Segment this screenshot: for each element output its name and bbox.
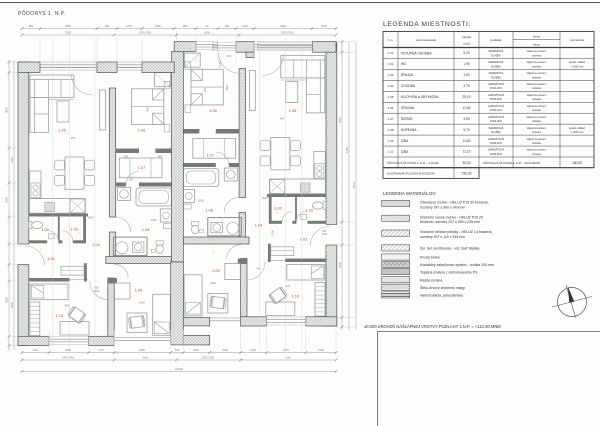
svg-text:IZBA: IZBA: [401, 150, 409, 154]
svg-text:PODLAHA: PODLAHA: [490, 87, 502, 90]
svg-text:2050: 2050: [155, 24, 161, 28]
svg-text:1,50: 1,50: [463, 73, 469, 77]
svg-text:omietka: omietka: [532, 65, 541, 68]
svg-text:Vnútorné nosné murivo - HELUZ: Vnútorné nosné murivo - HELUZ P15 25: [420, 215, 483, 219]
svg-text:PODLAHA: PODLAHA: [490, 109, 502, 112]
svg-text:1320: 1320: [193, 348, 199, 352]
svg-text:2000: 2000: [65, 348, 71, 352]
svg-text:omietka: omietka: [532, 76, 541, 79]
svg-text:1.03: 1.03: [388, 73, 394, 77]
svg-text:rozmery 247 x 300 x 249 mm: rozmery 247 x 300 x 249 mm: [420, 205, 465, 209]
svg-text:1.04: 1.04: [255, 223, 263, 228]
svg-text:v. 1500 mm: v. 1500 mm: [571, 65, 584, 68]
svg-text:450: 450: [71, 136, 76, 140]
svg-text:rozmery 497 x 115 x 249 mm: rozmery 497 x 115 x 249 mm: [420, 235, 465, 239]
svg-text:11,60: 11,60: [463, 106, 471, 110]
svg-text:1302 (780): 1302 (780): [202, 356, 215, 360]
svg-text:WC: WC: [401, 62, 407, 66]
svg-text:1300: 1300: [242, 24, 248, 28]
svg-text:DLAŽBA: DLAŽBA: [491, 76, 501, 79]
svg-text:1000: 1000: [218, 61, 222, 67]
svg-text:1.06: 1.06: [388, 106, 394, 110]
svg-text:2250: 2250: [65, 31, 71, 35]
svg-text:PODLAHA: PODLAHA: [490, 142, 502, 145]
svg-text:IZBA: IZBA: [401, 139, 409, 143]
svg-text:omietka: omietka: [532, 54, 541, 57]
svg-text:PODLAHA: PODLAHA: [490, 120, 502, 123]
svg-text:1600: 1600: [262, 196, 268, 200]
svg-text:400: 400: [286, 284, 291, 288]
svg-text:1450: 1450: [345, 147, 349, 153]
svg-text:3850: 3850: [5, 107, 9, 113]
svg-text:1.07: 1.07: [388, 117, 394, 121]
svg-text:300: 300: [227, 54, 232, 58]
svg-text:6200: 6200: [204, 31, 210, 35]
svg-text:400: 400: [146, 107, 150, 112]
svg-text:3,70: 3,70: [463, 84, 469, 88]
svg-text:3050: 3050: [65, 24, 71, 28]
svg-text:1285: 1285: [250, 348, 256, 352]
svg-text:1.01: 1.01: [388, 51, 394, 55]
svg-text:Žel. bet. konštrukcie - viď. č: Žel. bet. konštrukcie - viď. časť Statik…: [420, 246, 480, 251]
svg-text:900: 900: [256, 267, 261, 271]
svg-text:omietka: omietka: [532, 109, 541, 112]
svg-text:Vápenno-cement.: Vápenno-cement.: [527, 72, 547, 75]
svg-text:2000: 2000: [222, 348, 228, 352]
svg-text:3100: 3100: [285, 356, 291, 360]
svg-text:950: 950: [225, 24, 230, 28]
svg-text:950: 950: [183, 24, 188, 28]
svg-text:630: 630: [175, 348, 180, 352]
svg-text:11,60: 11,60: [463, 139, 471, 143]
svg-text:1,90: 1,90: [463, 62, 469, 66]
svg-text:KERAMICKÁ: KERAMICKÁ: [489, 127, 504, 130]
svg-text:DLAŽBA: DLAŽBA: [491, 54, 501, 57]
svg-text:2600: 2600: [151, 218, 157, 222]
svg-text:ZASTAVANÁ PLOCHA DVOJDOM: ZASTAVANÁ PLOCHA DVOJDOM: [387, 172, 435, 176]
svg-text:1.08: 1.08: [142, 227, 150, 232]
svg-text:Vápenno-cement.: Vápenno-cement.: [527, 149, 547, 152]
svg-text:ÚŽITKOVÁ PLOCHA 1. N.P. - 1 DO: ÚŽITKOVÁ PLOCHA 1. N.P. - 1 DOM: [387, 160, 439, 165]
svg-text:v. 2600 mm: v. 2600 mm: [571, 131, 584, 134]
svg-text:KERAMICKÁ: KERAMICKÁ: [489, 61, 504, 64]
svg-text:2850: 2850: [5, 297, 9, 303]
svg-text:400: 400: [203, 87, 207, 92]
svg-text:omietka: omietka: [532, 120, 541, 123]
svg-text:PODLAHA: PODLAHA: [490, 98, 502, 101]
svg-text:90,30: 90,30: [463, 161, 471, 165]
svg-text:1.05: 1.05: [388, 95, 394, 99]
svg-text:1.06: 1.06: [209, 108, 217, 113]
svg-text:(m2): (m2): [463, 42, 469, 46]
svg-text:1270: 1270: [98, 348, 104, 352]
svg-text:1.09: 1.09: [212, 268, 220, 273]
svg-text:2900: 2900: [5, 197, 9, 203]
svg-text:2900: 2900: [210, 281, 216, 285]
svg-text:KERAMICKÁ: KERAMICKÁ: [489, 72, 504, 75]
svg-text:3300: 3300: [280, 24, 286, 28]
svg-text:LAMINÁTOVÁ: LAMINÁTOVÁ: [488, 138, 504, 141]
svg-text:2900: 2900: [139, 301, 145, 305]
svg-text:1500: 1500: [318, 348, 324, 352]
svg-text:1.08: 1.08: [205, 208, 213, 213]
svg-text:960: 960: [29, 24, 34, 28]
svg-text:1.02: 1.02: [41, 227, 49, 232]
svg-text:1.10: 1.10: [292, 293, 300, 298]
svg-text:1.04: 1.04: [92, 242, 100, 247]
svg-text:1.02: 1.02: [388, 62, 394, 66]
svg-text:1.01: 1.01: [300, 237, 308, 242]
svg-text:keram. obklad: keram. obklad: [569, 61, 585, 64]
svg-text:2400: 2400: [338, 262, 342, 268]
svg-text:Vnútorné deliace priečky - HEL: Vnútorné deliace priečky - HELUZ 14 brús…: [420, 230, 492, 234]
svg-text:1.09: 1.09: [388, 139, 394, 143]
svg-text:2100: 2100: [322, 232, 328, 236]
svg-text:900: 900: [129, 178, 134, 182]
svg-text:LAMINÁTOVÁ: LAMINÁTOVÁ: [488, 149, 504, 152]
svg-text:SPÁLŇA: SPÁLŇA: [401, 106, 415, 110]
svg-text:1300 (780): 1300 (780): [281, 31, 294, 35]
svg-text:±0,000 ÚROVEŇ NÁŠĽAPNEJ VRSTVY: ±0,000 ÚROVEŇ NÁŠĽAPNEJ VRSTVY PODLAHY 1…: [364, 324, 501, 329]
svg-text:keram. obklad: keram. obklad: [569, 127, 585, 130]
svg-text:LAMINÁTOVÁ: LAMINÁTOVÁ: [488, 116, 504, 119]
svg-text:KÚPEĽŇA: KÚPEĽŇA: [401, 128, 417, 132]
svg-text:1.01: 1.01: [47, 256, 55, 261]
svg-text:Prostý betón: Prostý betón: [420, 256, 440, 260]
svg-text:brúsená, rozmery 247 x 250 x 2: brúsená, rozmery 247 x 250 x 249 mm: [420, 220, 480, 224]
svg-text:PÔDORYS 1. N.P.: PÔDORYS 1. N.P.: [18, 10, 66, 17]
svg-text:č.m.: č.m.: [388, 38, 394, 42]
svg-text:8950: 8950: [10, 302, 14, 308]
svg-text:ÚŽITKOVÁ PLOCHA 1. N.P. - DVOJ: ÚŽITKOVÁ PLOCHA 1. N.P. - DVOJDOM: [483, 160, 540, 165]
svg-text:750: 750: [124, 155, 129, 159]
svg-text:Vápenno-cement.: Vápenno-cement.: [527, 116, 547, 119]
svg-text:Hydroizolácia, parozábrana: Hydroizolácia, parozábrana: [420, 294, 463, 298]
svg-text:1305 (780): 1305 (780): [139, 31, 152, 35]
svg-text:1570: 1570: [321, 24, 327, 28]
svg-text:2600: 2600: [198, 199, 204, 203]
svg-text:1.09: 1.09: [135, 288, 143, 293]
svg-text:Vápenno-cement.: Vápenno-cement.: [527, 83, 547, 86]
svg-text:poznámka: poznámka: [570, 38, 584, 42]
svg-text:LAMINÁTOVÁ: LAMINÁTOVÁ: [488, 83, 504, 86]
svg-text:Vápenno-cement.: Vápenno-cement.: [527, 61, 547, 64]
svg-text:1305 (780): 1305 (780): [62, 356, 75, 360]
svg-text:KERAMICKÁ: KERAMICKÁ: [489, 50, 504, 53]
svg-text:1600: 1600: [225, 84, 229, 90]
svg-text:4,90: 4,90: [463, 117, 469, 121]
svg-text:5,20: 5,20: [463, 51, 469, 55]
svg-text:omietka: omietka: [532, 153, 541, 156]
svg-text:6150: 6150: [10, 157, 14, 163]
svg-text:steny: steny: [533, 34, 541, 38]
svg-text:1105: 1105: [32, 348, 38, 352]
svg-text:1.06: 1.06: [138, 128, 146, 133]
svg-text:omietka: omietka: [532, 87, 541, 90]
svg-text:180,60: 180,60: [572, 161, 582, 165]
svg-text:950: 950: [105, 24, 110, 28]
svg-text:ŠPAJZA: ŠPAJZA: [401, 72, 414, 77]
svg-text:DLAŽBA: DLAŽBA: [491, 65, 501, 68]
svg-text:PODLAHA: PODLAHA: [490, 153, 502, 156]
svg-text:účel miestnosti: účel miestnosti: [416, 38, 436, 42]
svg-text:1.05: 1.05: [58, 128, 66, 133]
svg-text:8950: 8950: [338, 117, 342, 123]
svg-text:ŠATNÍK: ŠATNÍK: [401, 116, 413, 121]
svg-text:KUCHYŇA a OBÝVAČKA: KUCHYŇA a OBÝVAČKA: [401, 94, 439, 99]
svg-text:LAMINÁTOVÁ: LAMINÁTOVÁ: [488, 94, 504, 97]
svg-text:podlaha: podlaha: [491, 38, 502, 42]
svg-text:1600: 1600: [88, 216, 94, 220]
svg-text:Vápenno-cement.: Vápenno-cement.: [527, 138, 547, 141]
svg-text:Vápenno-cement.: Vápenno-cement.: [527, 127, 547, 130]
svg-text:omietka: omietka: [532, 142, 541, 145]
svg-text:1.10: 1.10: [56, 313, 64, 318]
svg-text:29,10: 29,10: [463, 95, 471, 99]
svg-text:Rastlá zemina: Rastlá zemina: [420, 278, 442, 282]
svg-text:450: 450: [280, 117, 285, 121]
svg-text:strop: strop: [533, 42, 540, 46]
svg-text:2100: 2100: [94, 289, 100, 293]
svg-text:1.04: 1.04: [388, 84, 394, 88]
svg-text:9,70: 9,70: [463, 128, 469, 132]
svg-text:1500: 1500: [270, 230, 274, 236]
svg-text:LEGENDA MATERIÁLOV:: LEGENDA MATERIÁLOV:: [383, 190, 436, 196]
svg-text:omietka: omietka: [532, 131, 541, 134]
svg-text:1975: 1975: [283, 348, 289, 352]
svg-text:Vápenno-cement.: Vápenno-cement.: [527, 94, 547, 97]
svg-text:LAMINÁTOVÁ: LAMINÁTOVÁ: [488, 105, 504, 108]
svg-text:950: 950: [158, 155, 163, 159]
svg-text:VSTUPNÁ CHODBA: VSTUPNÁ CHODBA: [401, 51, 432, 55]
svg-text:3100: 3100: [142, 356, 148, 360]
svg-text:1.03: 1.03: [274, 206, 282, 211]
svg-text:400: 400: [65, 304, 70, 308]
svg-text:LEGENDA MIESTNOSTI:: LEGENDA MIESTNOSTI:: [383, 21, 471, 28]
svg-text:1.05: 1.05: [289, 108, 297, 113]
svg-text:900: 900: [94, 286, 99, 290]
svg-text:Tepelná izolácia z extrudované: Tepelná izolácia z extrudovaného PS: [420, 270, 478, 274]
svg-text:Štrko-drvový zhutnený násyp: Štrko-drvový zhutnený násyp: [420, 285, 465, 290]
svg-text:1.10: 1.10: [388, 150, 394, 154]
svg-text:14530: 14530: [175, 367, 183, 371]
svg-text:14530: 14530: [352, 181, 356, 189]
svg-text:Vápenno-cement.: Vápenno-cement.: [527, 105, 547, 108]
svg-text:Kontaktný zatepľovací systém -: Kontaktný zatepľovací systém - hrúbka 20…: [420, 263, 494, 267]
svg-text:1570: 1570: [126, 24, 132, 28]
svg-text:1.08: 1.08: [388, 128, 394, 132]
svg-text:DLAŽBA: DLAŽBA: [491, 131, 501, 134]
svg-text:2905: 2905: [139, 348, 145, 352]
svg-text:230,00: 230,00: [462, 172, 472, 176]
svg-text:1.03: 1.03: [70, 227, 78, 232]
svg-text:omietka: omietka: [532, 98, 541, 101]
svg-text:Vápenno-cement.: Vápenno-cement.: [527, 50, 547, 53]
svg-text:1.02: 1.02: [306, 207, 314, 212]
svg-text:1.07: 1.07: [138, 165, 146, 170]
svg-text:11,10: 11,10: [463, 150, 471, 154]
svg-text:CHODBA: CHODBA: [401, 84, 416, 88]
svg-text:1.07: 1.07: [206, 153, 214, 158]
svg-text:plocha: plocha: [462, 35, 471, 39]
svg-text:Obvodové murivo - HELUZ P15 30: Obvodové murivo - HELUZ P15 30 brúsená,: [420, 201, 489, 205]
